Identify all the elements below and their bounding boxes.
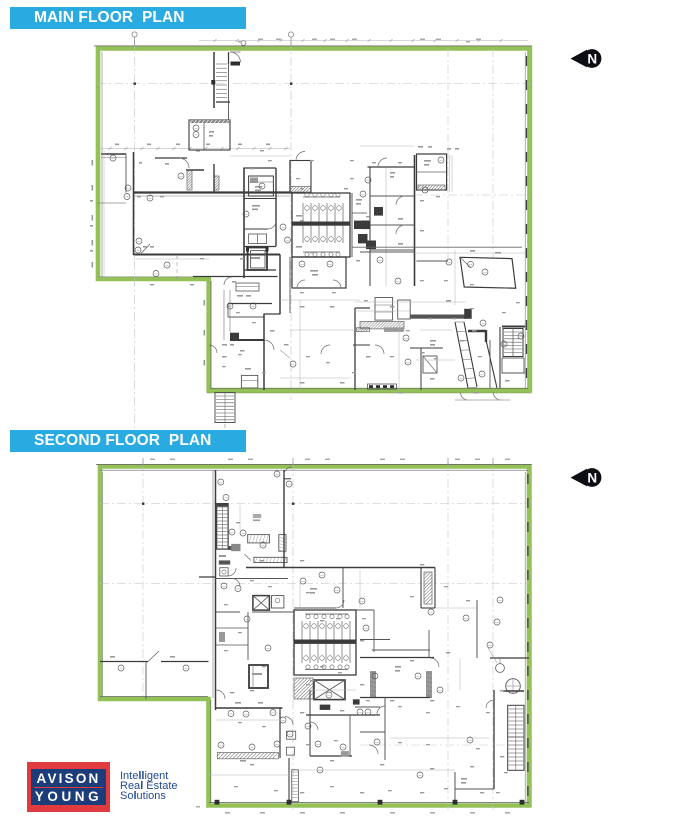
svg-text:N: N <box>587 51 597 66</box>
svg-text:N: N <box>587 470 597 485</box>
